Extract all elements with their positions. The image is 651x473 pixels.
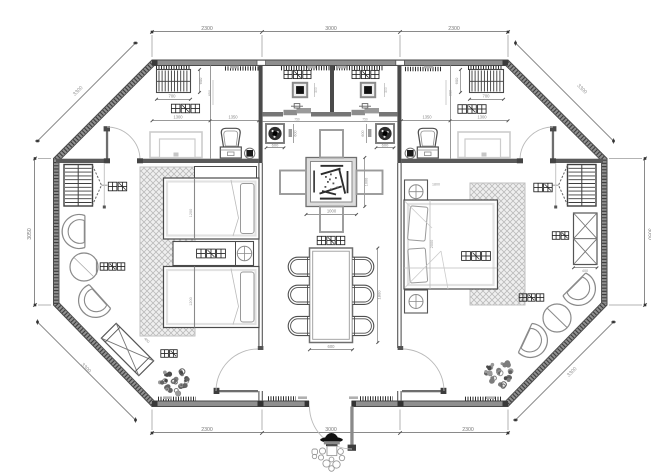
svg-text:1300: 1300 xyxy=(477,114,487,119)
svg-text:700: 700 xyxy=(483,94,491,99)
svg-text:2300: 2300 xyxy=(448,26,460,32)
svg-text:750: 750 xyxy=(362,118,368,122)
svg-text:3050: 3050 xyxy=(647,228,651,240)
svg-text:1300: 1300 xyxy=(173,114,183,119)
svg-text:300: 300 xyxy=(314,87,318,93)
svg-text:3000: 3000 xyxy=(325,427,337,433)
svg-text:1000: 1000 xyxy=(364,178,368,186)
svg-text:600: 600 xyxy=(454,77,459,84)
svg-text:700: 700 xyxy=(169,94,177,99)
svg-text:2000: 2000 xyxy=(430,240,434,248)
svg-text:400: 400 xyxy=(582,269,588,273)
svg-text:600: 600 xyxy=(328,344,336,349)
svg-text:1800: 1800 xyxy=(432,183,440,187)
svg-text:600: 600 xyxy=(382,142,389,147)
svg-text:2300: 2300 xyxy=(462,427,474,433)
svg-text:600: 600 xyxy=(293,130,297,136)
svg-text:1350: 1350 xyxy=(422,114,432,119)
svg-text:600: 600 xyxy=(272,142,279,147)
svg-text:1200: 1200 xyxy=(189,297,193,305)
svg-text:300: 300 xyxy=(384,87,388,93)
svg-text:1200: 1200 xyxy=(189,209,193,217)
svg-text:1800: 1800 xyxy=(376,290,381,300)
svg-text:1000: 1000 xyxy=(327,208,337,213)
svg-text:3050: 3050 xyxy=(27,228,33,240)
svg-text:650: 650 xyxy=(208,90,212,96)
svg-text:600: 600 xyxy=(361,130,365,136)
svg-text:2300: 2300 xyxy=(201,26,213,32)
svg-text:1350: 1350 xyxy=(228,114,238,119)
svg-text:3000: 3000 xyxy=(325,26,337,32)
svg-text:600: 600 xyxy=(198,77,203,84)
svg-text:750: 750 xyxy=(294,118,300,122)
svg-text:2300: 2300 xyxy=(201,427,213,433)
svg-text:650: 650 xyxy=(448,90,452,96)
